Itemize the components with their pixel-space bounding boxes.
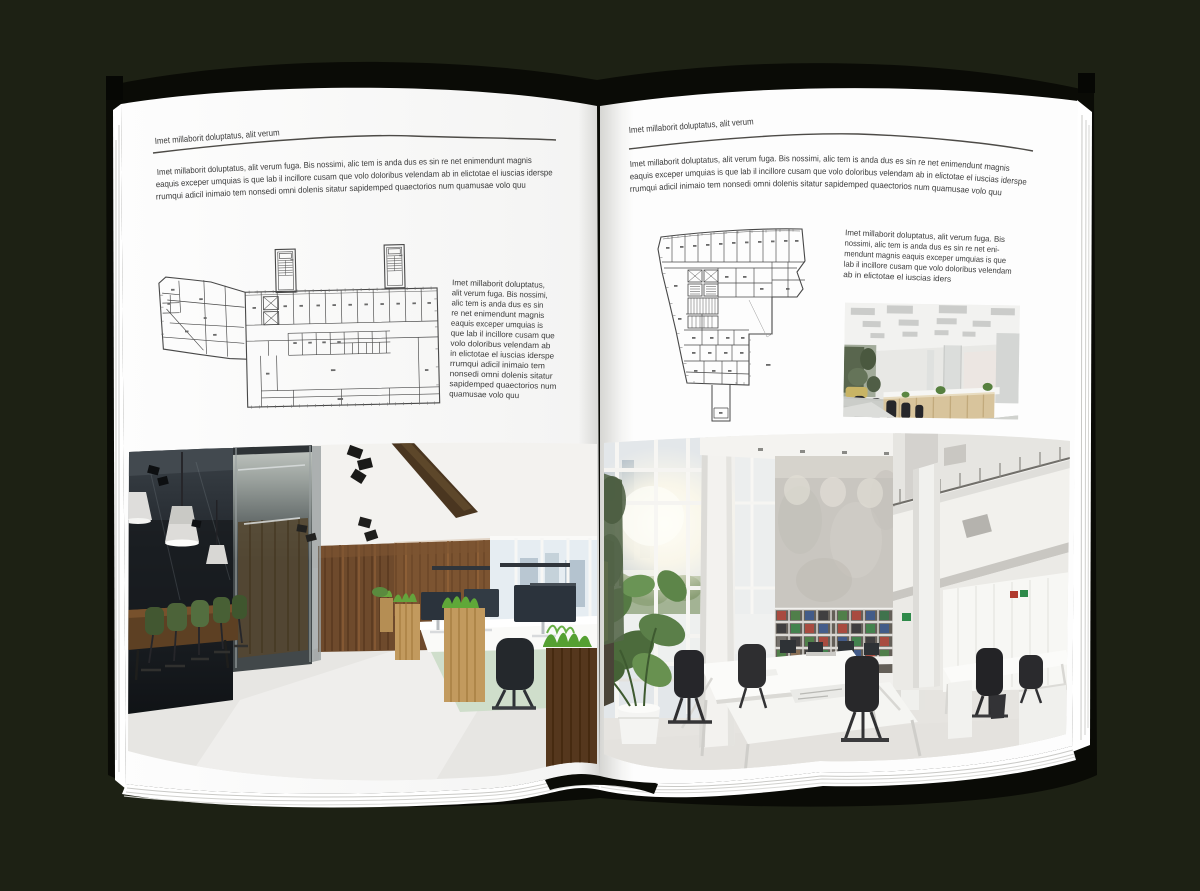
svg-text:quamusae volo quu: quamusae volo quu bbox=[449, 389, 519, 400]
